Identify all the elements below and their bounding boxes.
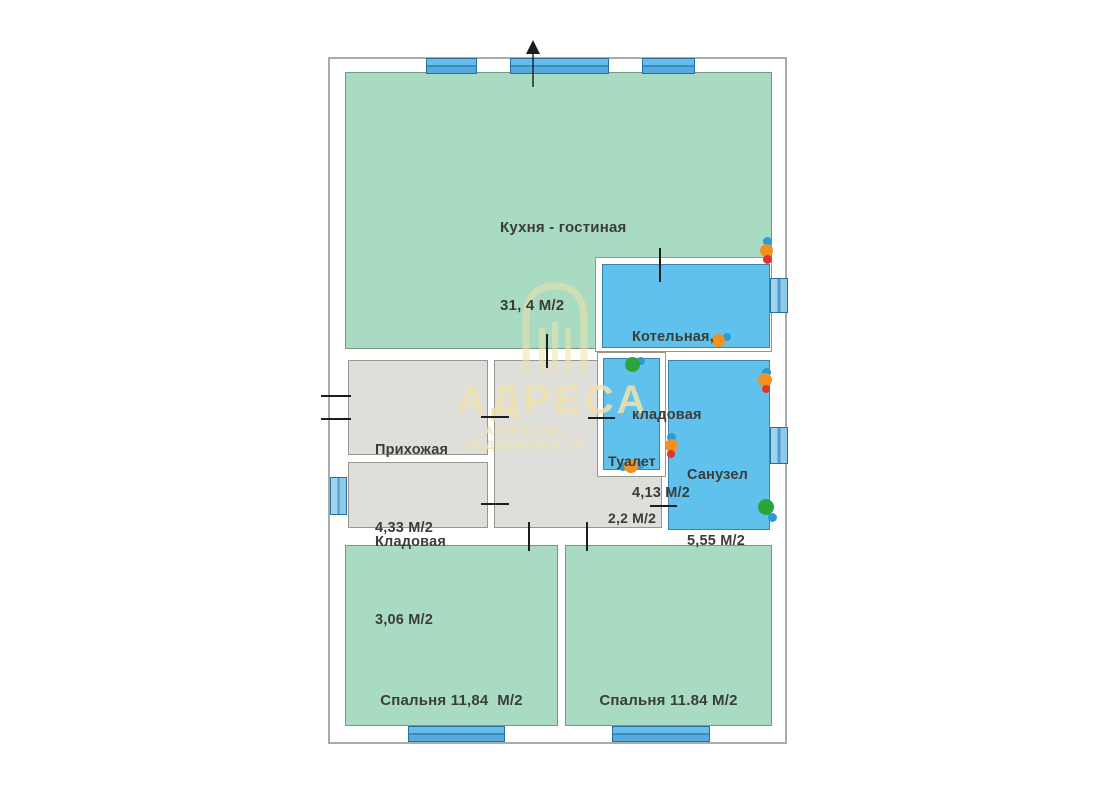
door-opening-tick	[481, 503, 509, 505]
room-label-bathroom: Санузел 5,55 М/2	[687, 420, 748, 596]
room-name: Прихожая	[375, 437, 448, 463]
window	[770, 278, 788, 313]
room-label-bedroom-right: Спальня 11.84 М/2	[565, 636, 772, 766]
room-label-bedroom-left: Спальня 11,84 М/2	[345, 636, 558, 766]
door-opening-tick	[586, 522, 588, 551]
room-area: 2,2 М/2	[608, 509, 656, 528]
room-name: Спальня 11,84 М/2	[345, 688, 558, 714]
room-name: Котельная,	[632, 324, 714, 350]
room-name: Туалет	[608, 452, 656, 471]
room-area: 3,06 М/2	[375, 607, 446, 633]
door-opening-tick	[321, 395, 351, 397]
north-arrow-icon	[525, 40, 541, 88]
watermark-subtitle-text: АГЕНТСТВО НЕДВИЖИМОСТИ	[448, 424, 603, 452]
window	[426, 58, 477, 74]
door-opening-tick	[528, 522, 530, 551]
floor-plan-page: АДРЕСА АГЕНТСТВО НЕДВИЖИМОСТИ Кухня - го…	[0, 0, 1116, 800]
room-name: Кухня - гостиная	[500, 215, 626, 241]
room-area: 31, 4 М/2	[500, 293, 626, 319]
door-opening-tick	[481, 416, 509, 418]
room-name: Спальня 11.84 М/2	[565, 688, 772, 714]
window	[770, 427, 788, 464]
room-area: 5,55 М/2	[687, 530, 748, 552]
room-name: Кладовая	[375, 529, 446, 555]
room-label-toilet: Туалет 2,2 М/2	[608, 414, 656, 566]
socket-group-marker	[762, 385, 770, 393]
window	[330, 477, 347, 515]
room-label-kitchen-living: Кухня - гостиная 31, 4 М/2	[500, 163, 626, 371]
switch-group-marker	[758, 499, 774, 515]
door-opening-tick	[321, 418, 351, 420]
socket-group-marker	[763, 255, 772, 264]
room-name: Санузел	[687, 464, 748, 486]
window	[642, 58, 695, 74]
